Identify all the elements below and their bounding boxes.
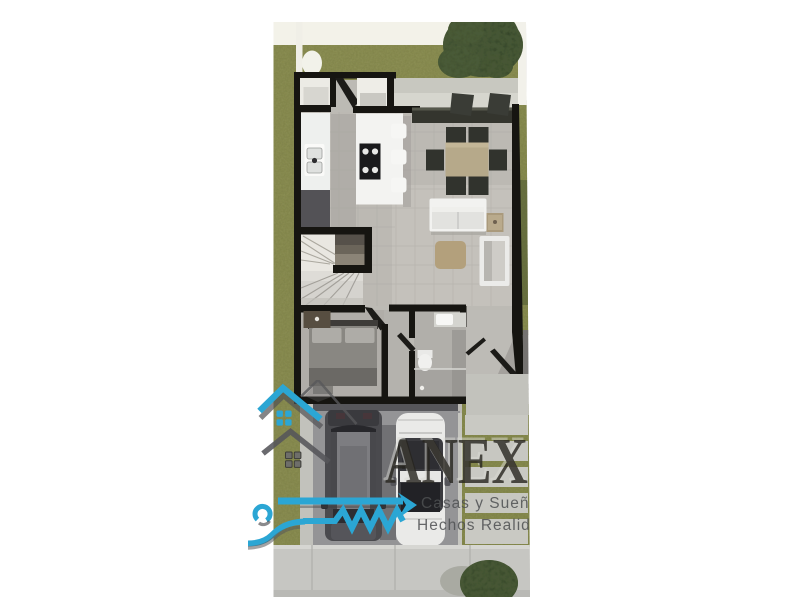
svg-text:Casas y Sueños: Casas y Sueños (421, 495, 548, 512)
svg-text:ANEX: ANEX (385, 425, 528, 498)
